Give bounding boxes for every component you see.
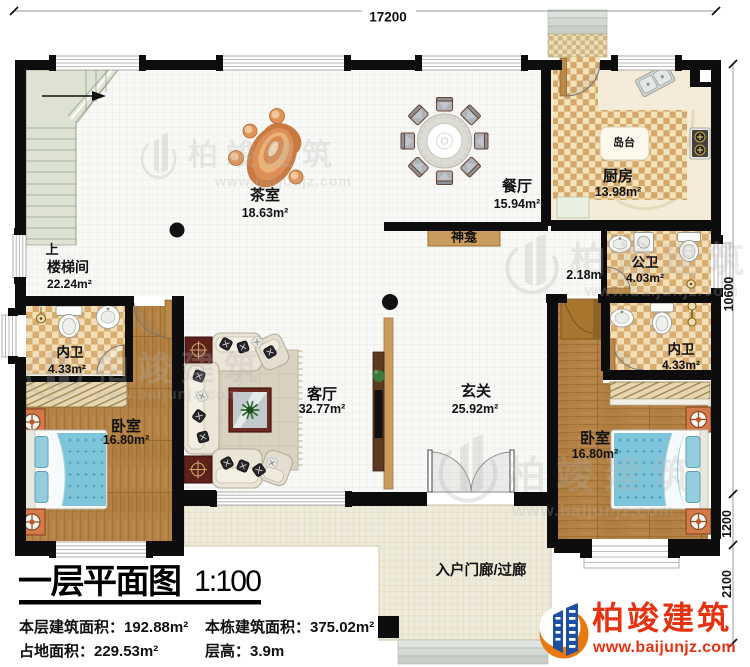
svg-text:柏竣建筑: 柏竣建筑	[95, 349, 267, 388]
svg-text:16.80m²: 16.80m²	[572, 447, 619, 461]
svg-text:柏竣建筑: 柏竣建筑	[508, 455, 700, 497]
svg-text:25.92m²: 25.92m²	[452, 402, 499, 416]
svg-text:本栋建筑面积：375.02m²: 本栋建筑面积：375.02m²	[205, 618, 374, 636]
svg-text:厨房: 厨房	[603, 167, 633, 185]
svg-text:32.77m²: 32.77m²	[299, 402, 346, 416]
svg-text:www.baijunjz.com: www.baijunjz.com	[584, 283, 739, 300]
svg-text:16.80m²: 16.80m²	[103, 433, 150, 447]
svg-text:上: 上	[45, 242, 58, 257]
svg-text:1200: 1200	[720, 510, 734, 538]
svg-text:玄关: 玄关	[461, 382, 491, 400]
svg-text:2.18m²: 2.18m²	[566, 268, 606, 282]
svg-text:www.baijunjz.com: www.baijunjz.com	[214, 173, 352, 189]
svg-text:茶室: 茶室	[250, 186, 280, 204]
svg-text:4.33m²: 4.33m²	[662, 358, 700, 372]
svg-text:公卫: 公卫	[632, 255, 660, 270]
svg-text:本层建筑面积：192.88m²: 本层建筑面积：192.88m²	[19, 618, 188, 636]
svg-text:内卫: 内卫	[57, 344, 84, 360]
svg-text:www.baijunjz.com: www.baijunjz.com	[592, 639, 736, 656]
svg-text:www.baijunjz.com: www.baijunjz.com	[511, 501, 675, 520]
svg-text:卧室: 卧室	[580, 429, 610, 447]
svg-text:4.03m²: 4.03m²	[626, 271, 664, 285]
svg-text:18.63m²: 18.63m²	[242, 206, 289, 220]
svg-text:占地面积：229.53m²: 占地面积：229.53m²	[19, 642, 158, 660]
svg-text:2100: 2100	[720, 570, 734, 598]
svg-text:餐厅: 餐厅	[502, 177, 532, 195]
svg-text:楼梯间: 楼梯间	[47, 259, 89, 275]
svg-text:层高：3.9m: 层高：3.9m	[205, 642, 284, 660]
svg-text:22.24m²: 22.24m²	[47, 277, 92, 291]
svg-text:神龛: 神龛	[451, 230, 478, 245]
svg-text:内卫: 内卫	[668, 341, 696, 357]
svg-text:10600: 10600	[722, 277, 736, 312]
svg-text:入户门廊/过廊: 入户门廊/过廊	[435, 561, 527, 579]
svg-text:柏竣建筑: 柏竣建筑	[188, 138, 340, 172]
svg-text:13.98m²: 13.98m²	[595, 185, 642, 199]
svg-text:岛台: 岛台	[613, 135, 635, 149]
svg-text:www.baijunjz.com: www.baijunjz.com	[94, 386, 240, 403]
svg-text:17200: 17200	[369, 10, 407, 25]
svg-text:1:100: 1:100	[194, 565, 261, 598]
svg-text:一层平面图: 一层平面图	[18, 563, 181, 601]
svg-text:客厅: 客厅	[306, 385, 337, 403]
svg-text:柏竣建筑: 柏竣建筑	[592, 600, 732, 636]
svg-text:15.94m²: 15.94m²	[494, 197, 541, 211]
svg-text:4.33m²: 4.33m²	[48, 362, 86, 376]
